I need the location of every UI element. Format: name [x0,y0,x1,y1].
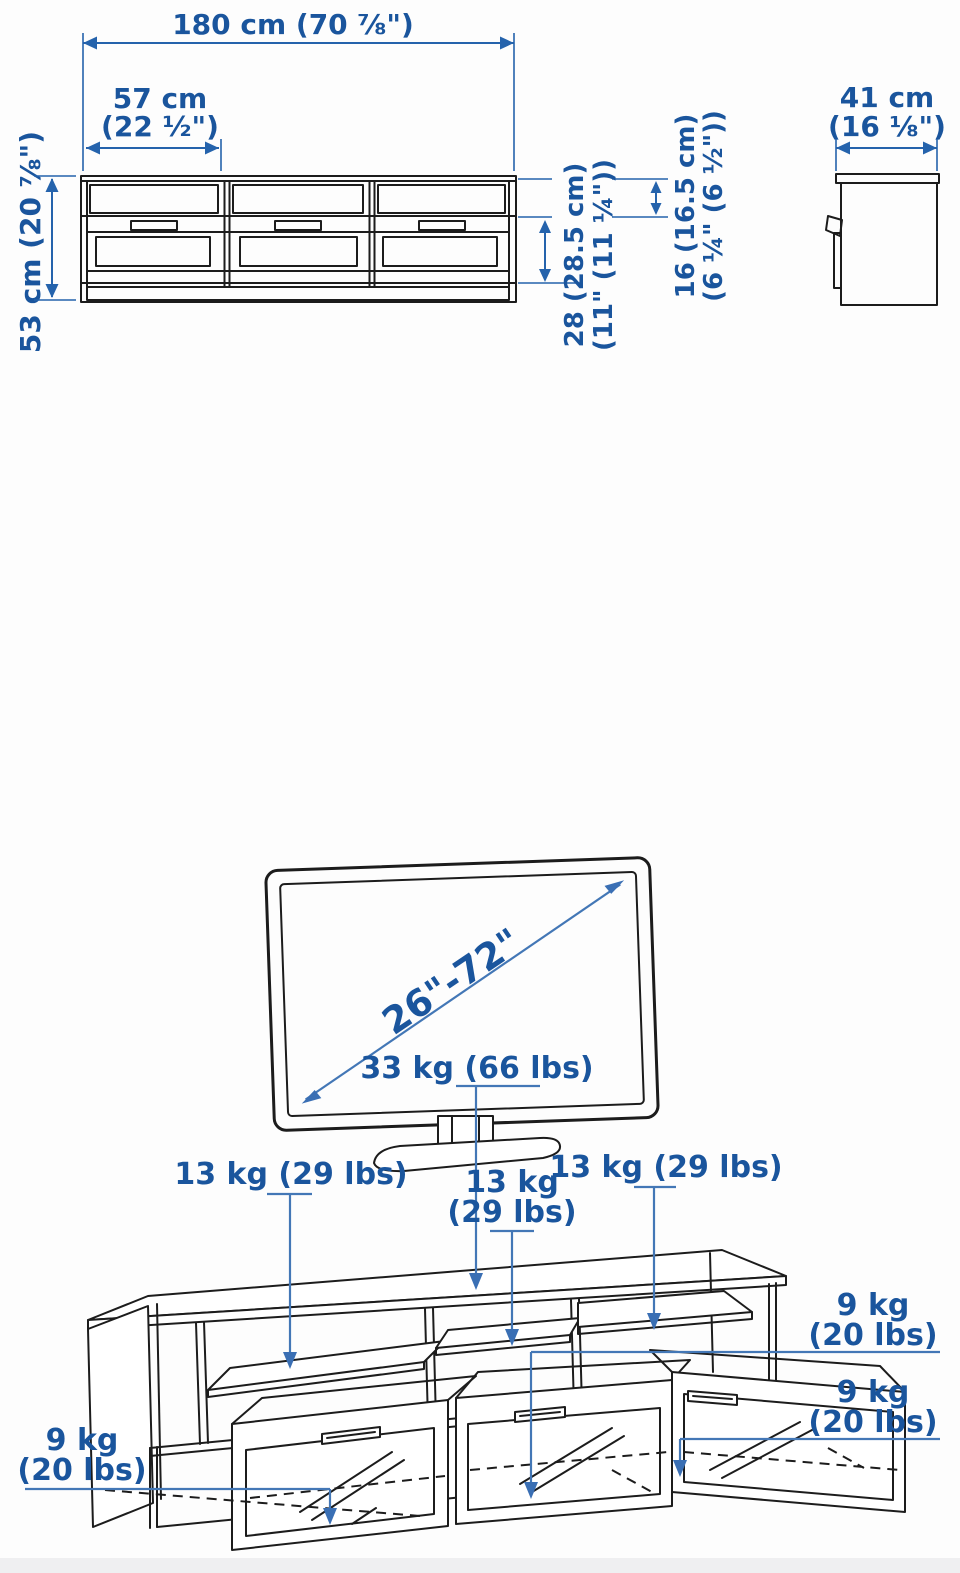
dim-overall-height: 53 cm (20 ⅞") [14,131,47,353]
front-view-drawing [81,176,516,302]
load-drawer-left-label-2: (20 lbs) [17,1453,146,1488]
side-view-top-panel [836,174,939,183]
load-top-panel-label: 33 kg (66 lbs) [360,1051,593,1086]
bench-illustration [88,1250,905,1550]
drawer-handle-front-middle [275,221,321,230]
dim-depth-2: (16 ⅛") [828,110,946,143]
load-shelf-left-label: 13 kg (29 lbs) [174,1157,407,1192]
product-dimension-diagram: 180 cm (70 ⅞") 57 cm (22 ½") 53 cm (20 ⅞… [0,0,960,1573]
load-drawer-right-bottom-label-2: (20 lbs) [808,1405,937,1440]
drawer-handle-front-right [419,221,465,230]
load-shelf-middle-label-2: (29 lbs) [447,1195,576,1230]
side-view-edge-strip [834,233,841,288]
side-view-handle [826,216,842,236]
footer-bar [0,1558,960,1573]
bench-drawer-left [232,1376,476,1550]
tv-illustration: 26"-72" [266,857,659,1171]
side-view-drawing: 41 cm (16 ⅛") [826,81,946,305]
load-drawer-right-top-label-2: (20 lbs) [808,1318,937,1353]
side-view-body [841,183,937,305]
dim-overall-width: 180 cm (70 ⅞") [172,8,414,41]
dim-shelf-height-1: 16 (16.5 cm) [671,114,701,299]
drawer-handle-front-left [131,221,177,230]
dim-drawer-height-1: 28 (28.5 cm) [560,163,590,348]
dim-section-width-2: (22 ½") [101,110,219,143]
dim-shelf-height-2: (6 ¼" (6 ½")) [699,110,729,302]
load-shelf-right-label: 13 kg (29 lbs) [549,1150,782,1185]
tv-screen-size-label: 26"-72" [375,920,529,1043]
diagram-canvas: 180 cm (70 ⅞") 57 cm (22 ½") 53 cm (20 ⅞… [0,0,960,1573]
dim-drawer-height-2: (11" (11 ¼")) [589,159,619,351]
